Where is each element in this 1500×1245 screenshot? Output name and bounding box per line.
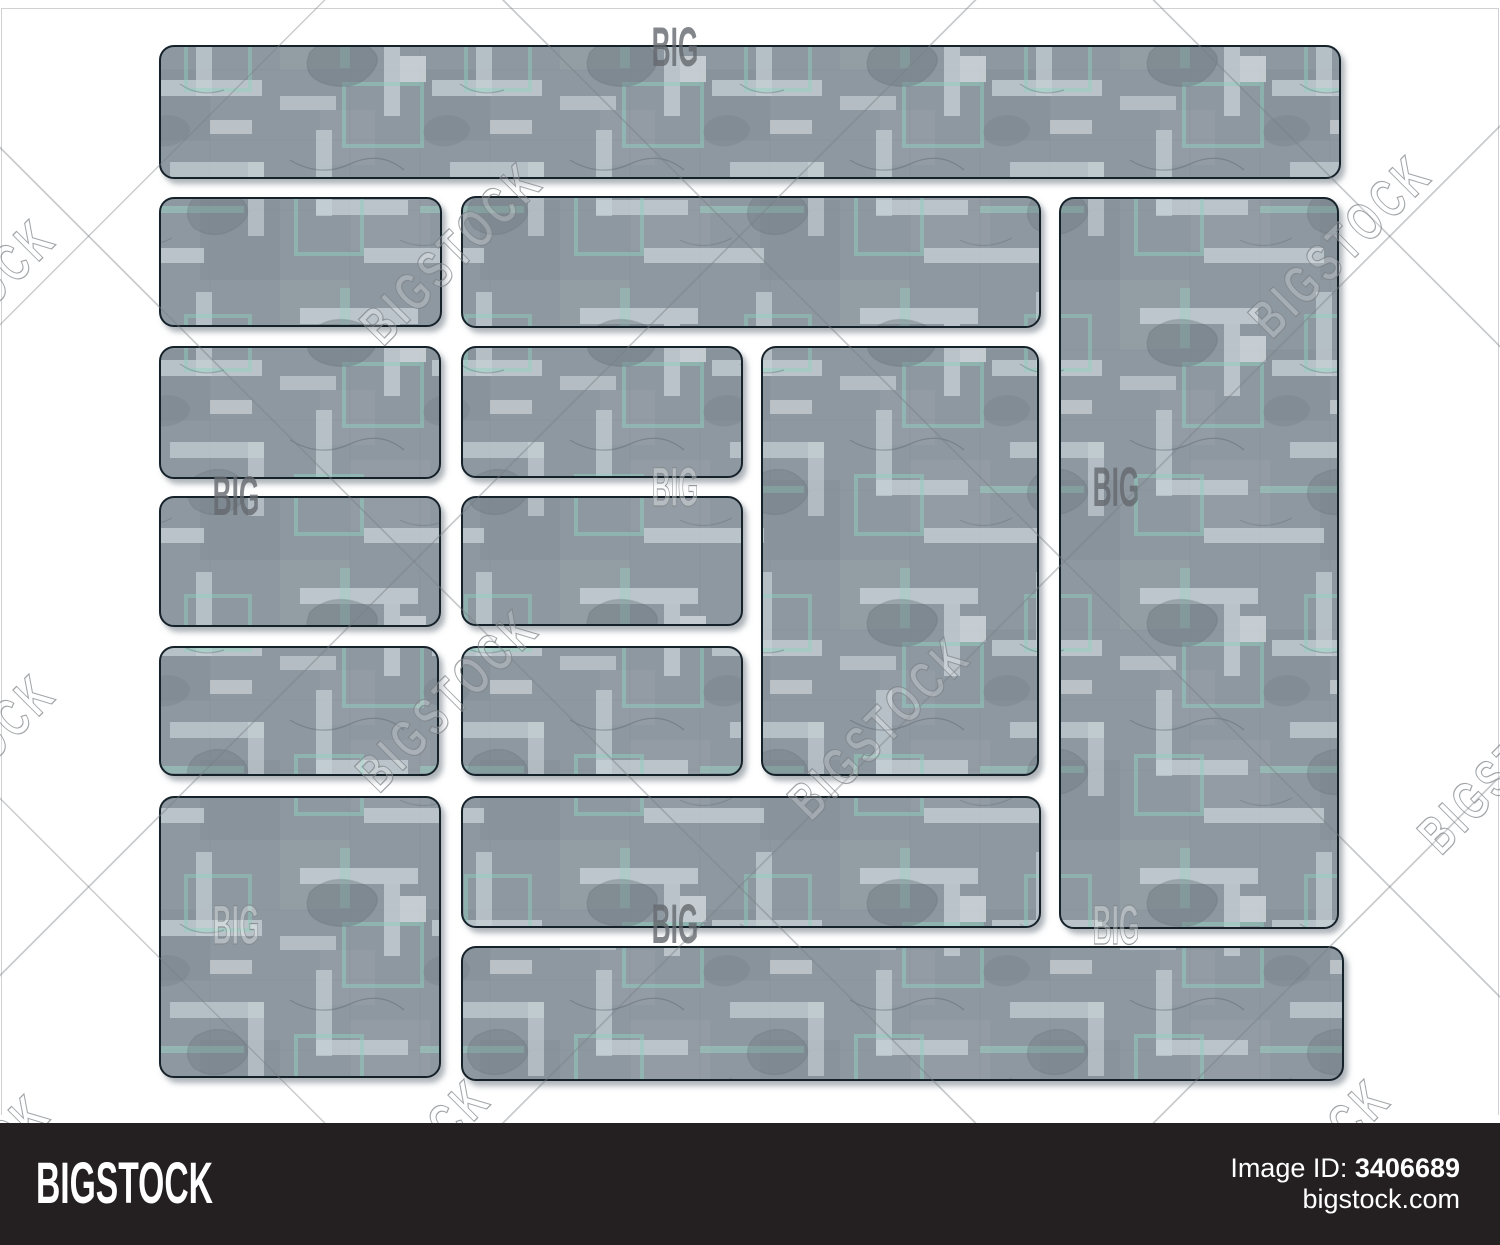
panel-row3-middle [462,347,742,477]
panels-group [160,46,1343,1080]
panel-left-tall-block [160,797,440,1077]
stock-image-preview: BIGSTOCKBIGSTOCKBIGSTOCKBIGSTOCKBIGSTOCK… [0,0,1500,1245]
bigstock-brand-bar: BIGSTOCK Image ID: 3406689 bigstock.com [0,1123,1500,1245]
panel-right-tall-column [1060,198,1338,928]
panel-row4-middle [462,497,742,625]
panel-bottom-banner [462,947,1343,1080]
brand-bar-right-text: Image ID: 3406689 bigstock.com [1230,1153,1460,1215]
panel-row6-center-banner [462,797,1040,927]
image-id-line: Image ID: 3406689 [1230,1153,1460,1184]
panel-header-banner [160,46,1340,178]
image-id-value: 3406689 [1355,1153,1460,1183]
bigstock-logo: BIGSTOCK [36,1155,213,1213]
panel-row2-center-banner [462,197,1040,327]
template-panels-illustration [0,0,1500,1123]
site-url: bigstock.com [1230,1184,1460,1215]
panel-row5-left [160,647,438,775]
panel-center-tall-column [762,347,1038,775]
panel-row4-left [160,497,440,626]
panel-row2-left [160,198,441,326]
panel-row5-middle [462,647,742,775]
panel-row3-left [160,347,440,478]
image-id-label: Image ID: [1230,1153,1347,1183]
